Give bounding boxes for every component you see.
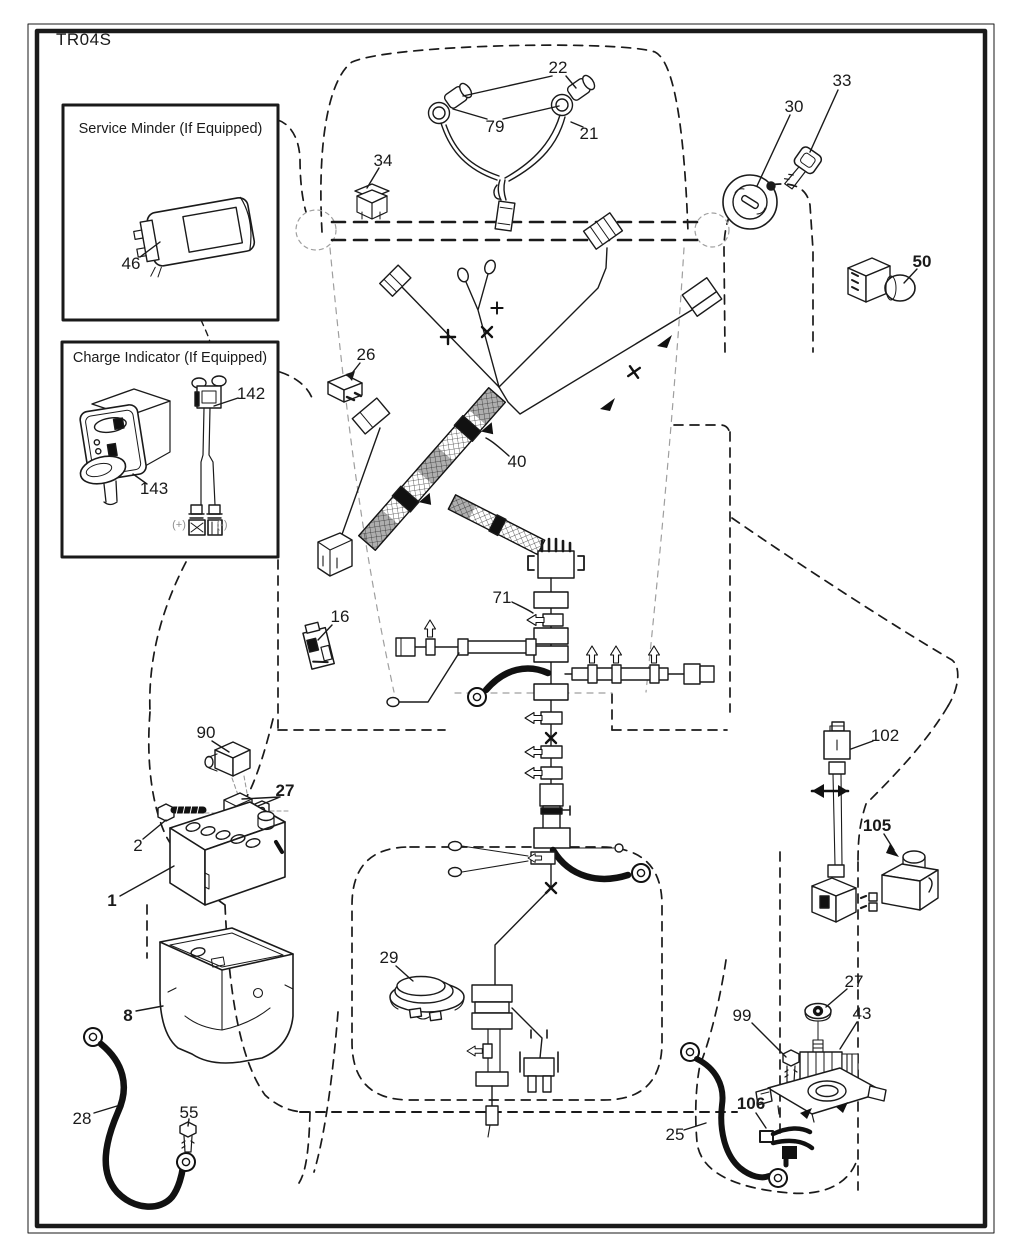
- callout-26: 26: [357, 345, 376, 365]
- callout-21: 21: [580, 124, 599, 144]
- callout-90: 90: [197, 723, 216, 743]
- callout--: (-): [217, 519, 228, 531]
- callout-16: 16: [331, 607, 350, 627]
- callout-43: 43: [853, 1004, 872, 1024]
- service-minder-box: [63, 105, 278, 320]
- callout-8: 8: [123, 1006, 132, 1026]
- callout-102: 102: [871, 726, 899, 746]
- connector-90-drawing: [205, 741, 250, 795]
- callout-33: 33: [833, 71, 852, 91]
- relay-26-drawing: [328, 363, 362, 402]
- callout-142: 142: [237, 384, 265, 404]
- clip-106-drawing: [756, 1113, 812, 1165]
- starter-cable-25-drawing: [678, 1040, 789, 1189]
- callout-30: 30: [785, 97, 804, 117]
- callout-46: 46: [122, 254, 141, 274]
- ignition-switch-drawing: [723, 115, 790, 229]
- valve-105-drawing: [861, 834, 938, 911]
- callout-22: 22: [549, 58, 568, 78]
- callout-55: 55: [180, 1103, 199, 1123]
- callout-27: 27: [276, 781, 295, 801]
- battery-group-drawing: [120, 793, 289, 905]
- headlamp-harness-drawing: [429, 73, 597, 231]
- callout-2: 2: [133, 836, 142, 856]
- interlock-16-drawing: [301, 621, 334, 669]
- callout-99: 99: [733, 1006, 752, 1026]
- service-minder-title: Service Minder (If Equipped): [64, 121, 277, 137]
- callout-71: 71: [493, 588, 512, 608]
- callout-25: 25: [666, 1125, 685, 1145]
- battery-box-drawing: [136, 928, 293, 1063]
- charge-indicator-title: Charge Indicator (If Equipped): [63, 350, 277, 366]
- callout-143: 143: [140, 479, 168, 499]
- callout-105: 105: [863, 816, 891, 836]
- wiring-schematic-drawing: [387, 539, 714, 1137]
- callout-1: 1: [107, 891, 116, 911]
- callout-40: 40: [508, 452, 527, 472]
- parts-diagram-page: TR04S Service Minder (If Equipped) Charg…: [0, 0, 1024, 1252]
- switch-34-drawing: [355, 168, 389, 219]
- page-code: TR04S: [56, 30, 111, 50]
- callout-34: 34: [374, 151, 393, 171]
- callout-79: 79: [486, 117, 505, 137]
- callout-106: 106: [737, 1094, 765, 1114]
- charge-wire-drawing: [189, 376, 238, 535]
- callout-28: 28: [73, 1109, 92, 1129]
- diagram-line-art: [0, 0, 1024, 1252]
- callout-29: 29: [380, 948, 399, 968]
- hour-meter-drawing: [390, 966, 464, 1021]
- axle-band: [332, 222, 700, 240]
- switch-50-drawing: [848, 258, 917, 302]
- charge-indicator-box: [62, 342, 278, 557]
- screw-55-drawing: [180, 1119, 196, 1152]
- callout-+: (+): [172, 519, 186, 531]
- main-harness-drawing: [318, 213, 722, 576]
- callout-27: 27: [845, 972, 864, 992]
- callout-50: 50: [913, 252, 932, 272]
